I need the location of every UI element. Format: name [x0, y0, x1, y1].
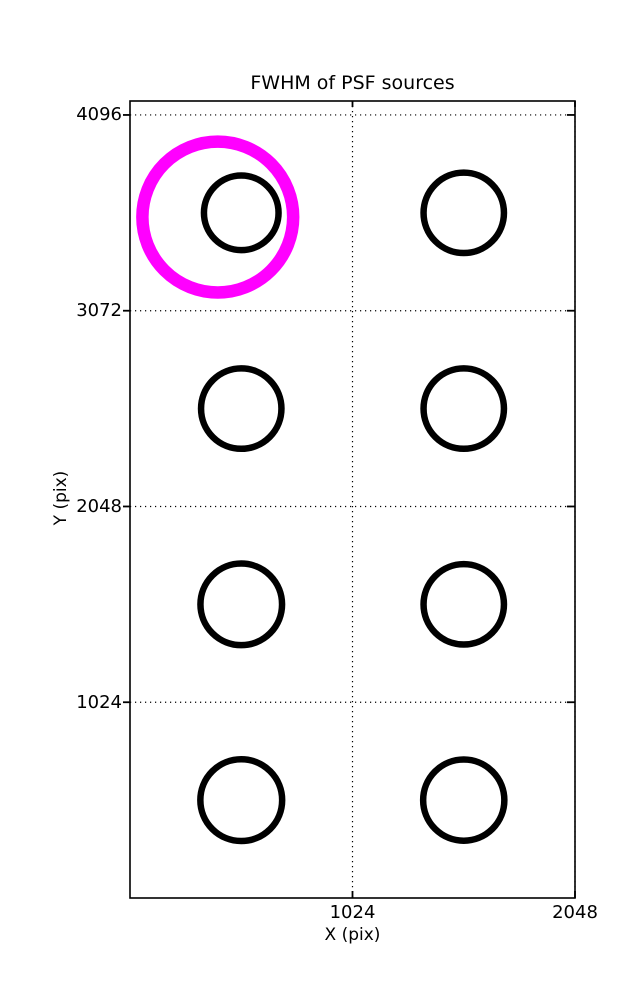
y-tick-label: 3072: [42, 300, 122, 321]
chart-title: FWHM of PSF sources: [130, 72, 575, 94]
psf-source-circle: [201, 368, 281, 448]
psf-source-circle: [200, 759, 282, 841]
x-tick-label: 2048: [530, 902, 620, 923]
x-tick-label: 1024: [308, 902, 398, 923]
psf-source-circle: [424, 564, 504, 644]
psf-source-circle: [204, 176, 279, 251]
psf-source-circle: [423, 760, 504, 841]
highlight-circle: [142, 142, 293, 293]
psf-source-circle: [424, 368, 504, 448]
y-tick-label: 4096: [42, 104, 122, 125]
axes-border: [130, 101, 575, 898]
psf-source-circle: [424, 173, 504, 253]
x-axis-label: X (pix): [130, 925, 575, 945]
y-tick-label: 1024: [42, 692, 122, 713]
figure-canvas: FWHM of PSF sources X (pix) Y (pix) 1024…: [0, 0, 637, 1000]
y-tick-label: 2048: [42, 496, 122, 517]
psf-source-circle: [200, 564, 282, 646]
